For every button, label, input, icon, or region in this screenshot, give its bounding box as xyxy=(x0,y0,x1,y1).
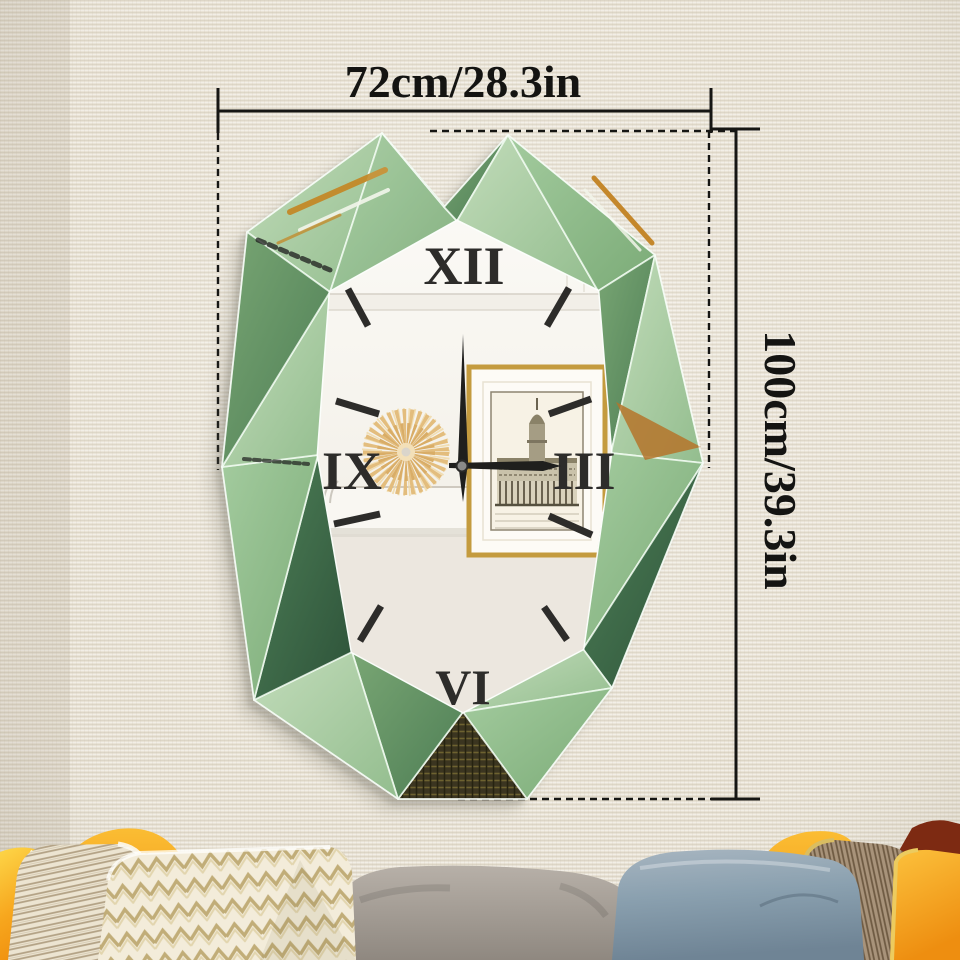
sunburst-ornament-reflection xyxy=(372,418,440,486)
numeral-xii: XII xyxy=(423,236,504,296)
product-photo-scene: 72cm/28.3in 100cm/39.3in xyxy=(0,0,960,960)
clock-hub xyxy=(457,461,468,472)
height-dimension-label: 100cm/39.3in xyxy=(755,330,806,589)
wall-left-shade xyxy=(0,0,70,960)
width-dimension-label: 72cm/28.3in xyxy=(345,56,581,107)
numeral-ix: IX xyxy=(322,441,382,501)
sofa-back xyxy=(336,866,638,960)
scene-canvas: 72cm/28.3in 100cm/39.3in xyxy=(0,0,960,960)
numeral-iii: III xyxy=(552,441,615,501)
pillow-orange-far-right xyxy=(890,850,960,960)
numeral-vi: VI xyxy=(435,659,491,715)
